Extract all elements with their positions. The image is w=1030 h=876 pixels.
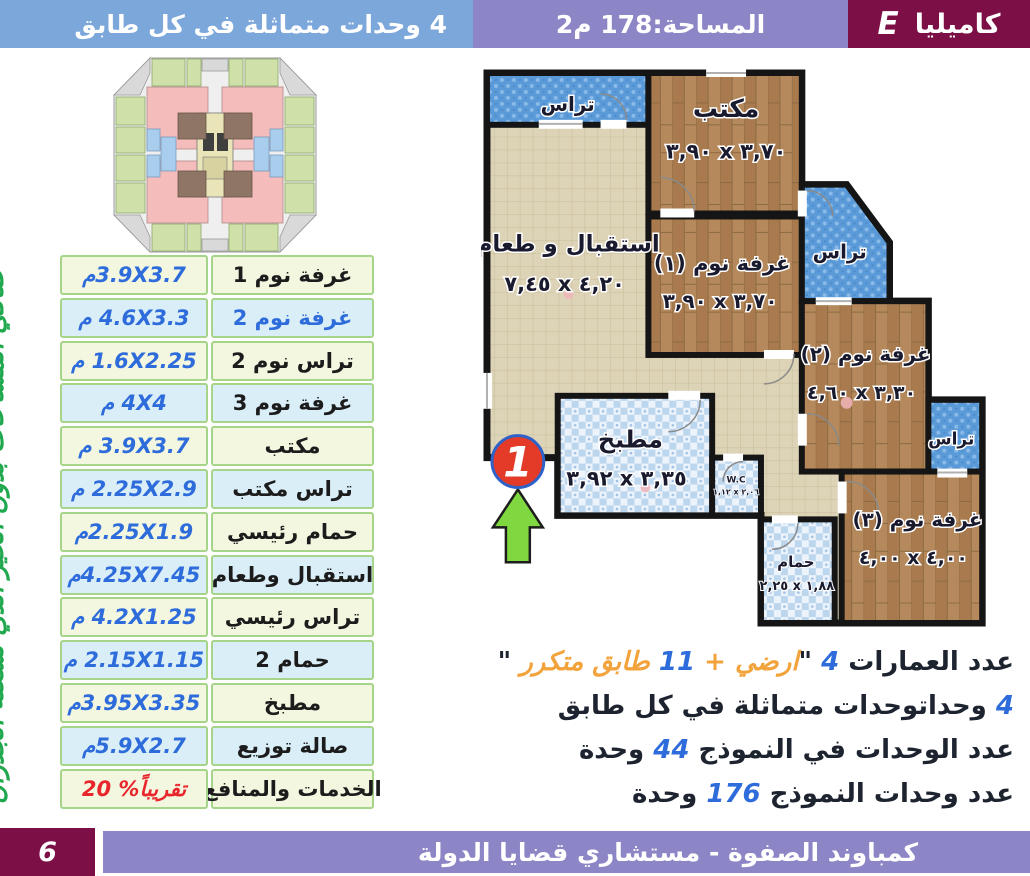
areas-table-row: استقبال وطعام4.25X7.45م bbox=[60, 555, 374, 595]
model-letter: E bbox=[878, 6, 899, 42]
info-line: عدد وحدات النموذج 176 وحدة bbox=[454, 772, 1014, 816]
areas-table-row: صالة توزيع5.9X2.7م bbox=[60, 726, 374, 766]
side-note-text: صافي المساحات بدون الحيز الذي تشغلة الجد… bbox=[0, 258, 10, 816]
info-segment: 176 bbox=[706, 779, 760, 809]
room-name-cell: مكتب bbox=[211, 426, 374, 466]
info-segment: وحدة bbox=[632, 779, 706, 809]
room-dimensions-cell: 20 %تقريباً bbox=[60, 769, 208, 809]
floor-plan-svg: تراس مكتب ٣,٩٠ x ٣,٧٠ استقبال و طعام ٧,٤… bbox=[481, 57, 1029, 639]
info-segment: " bbox=[498, 647, 521, 677]
kitchen-dims: ٣,٩٢ x ٣,٣٥ bbox=[566, 466, 687, 490]
terrace-office-label: تراس bbox=[813, 240, 867, 263]
room-dimensions-cell: 2.25X1.9م bbox=[60, 512, 208, 552]
room-name-cell: صالة توزيع bbox=[211, 726, 374, 766]
room-name-cell: تراس مكتب bbox=[211, 469, 374, 509]
bedroom-1-dims: ٣,٩٠ x ٣,٧٠ bbox=[663, 290, 778, 313]
areas-table-row: مكتب3.9X3.7 م bbox=[60, 426, 374, 466]
area-text: المساحة:178 م2 bbox=[556, 10, 765, 39]
bedroom-1-room bbox=[648, 216, 801, 354]
room-name-cell: غرفة نوم 1 bbox=[211, 255, 374, 295]
bedroom-2-dims: ٤,٦٠ x ٣,٣٠ bbox=[807, 382, 916, 404]
areas-table-row: تراس رئيسي4.2X1.25 م bbox=[60, 597, 374, 637]
room-dimensions-cell: 3.9X3.7م bbox=[60, 255, 208, 295]
room-dimensions-cell: 4.25X7.45م bbox=[60, 555, 208, 595]
areas-table-row: حمام رئيسي2.25X1.9م bbox=[60, 512, 374, 552]
building-overview-svg bbox=[90, 55, 340, 255]
room-name-cell: تراس نوم 2 bbox=[211, 341, 374, 381]
wc-label: W.C bbox=[727, 476, 746, 486]
entrance-marker: 1 bbox=[492, 436, 544, 563]
footer-title-bar: كمباوند الصفوة - مستشاري قضايا الدولة bbox=[103, 831, 1030, 873]
room-dimensions-cell: 4X4 م bbox=[60, 383, 208, 423]
bedroom-1-label: غرفة نوم (١) bbox=[654, 251, 790, 275]
room-dimensions-cell: 4.6X3.3 م bbox=[60, 298, 208, 338]
info-line: عدد الوحدات في النموذج 44 وحدة bbox=[454, 728, 1014, 772]
footer-title-text: كمباوند الصفوة - مستشاري قضايا الدولة bbox=[418, 838, 918, 867]
terrace-main-label: تراس bbox=[541, 93, 595, 116]
header-model: كاميليا E bbox=[848, 0, 1030, 48]
areas-table-row: مطبخ3.95X3.35م bbox=[60, 683, 374, 723]
areas-table-row: تراس نوم 21.6X2.25 م bbox=[60, 341, 374, 381]
room-dimensions-cell: 2.15X1.15 م bbox=[60, 640, 208, 680]
apartment-floor-plan: تراس مكتب ٣,٩٠ x ٣,٧٠ استقبال و طعام ٧,٤… bbox=[481, 57, 1029, 639]
areas-table-row: حمام 22.15X1.15 م bbox=[60, 640, 374, 680]
room-dimensions-cell: 3.95X3.35م bbox=[60, 683, 208, 723]
kitchen-room bbox=[558, 396, 712, 516]
bedroom-3-dims: ٤,٠٠ x ٤,٠٠ bbox=[859, 547, 968, 569]
unit-number-text: 1 bbox=[503, 438, 532, 487]
areas-table-row: غرفة نوم 24.6X3.3 م bbox=[60, 298, 374, 338]
room-name-cell: حمام رئيسي bbox=[211, 512, 374, 552]
info-segment: ارضي + bbox=[695, 647, 798, 677]
areas-table: غرفة نوم 13.9X3.7مغرفة نوم 24.6X3.3 مترا… bbox=[60, 255, 374, 811]
room-dimensions-cell: 5.9X2.7م bbox=[60, 726, 208, 766]
areas-table-row: غرفة نوم 34X4 م bbox=[60, 383, 374, 423]
info-segment: طابق متكرر bbox=[520, 647, 659, 677]
info-line: عدد العمارات 4 "ارضي + 11 طابق متكرر " bbox=[454, 640, 1014, 684]
reception-dims: ٧,٤٥ x ٤,٢٠ bbox=[504, 272, 625, 296]
terrace-bedroom2-label: تراس bbox=[928, 429, 974, 450]
room-name-cell: تراس رئيسي bbox=[211, 597, 374, 637]
room-name-cell: استقبال وطعام bbox=[211, 555, 374, 595]
info-segment: وحداتوحدات متماثلة في كل طابق bbox=[558, 691, 996, 721]
room-dimensions-cell: 3.9X3.7 م bbox=[60, 426, 208, 466]
room-name-cell: مطبخ bbox=[211, 683, 374, 723]
info-segment: 44 bbox=[653, 735, 689, 765]
building-overview-plan bbox=[90, 55, 340, 255]
info-segment: عدد العمارات bbox=[839, 647, 1014, 677]
units-note-text: 4 وحدات متماثلة في كل طابق bbox=[74, 10, 447, 39]
bathroom-dims: ٢,٢٥ x ١,٨٨ bbox=[760, 579, 835, 594]
kitchen-label: مطبخ bbox=[598, 426, 663, 454]
room-name-cell: غرفة نوم 2 bbox=[211, 298, 374, 338]
page-number-text: 6 bbox=[38, 837, 57, 868]
info-segment: 4 bbox=[821, 647, 839, 677]
wc-dims: ١,١٢ x ٢,٠٦ bbox=[713, 487, 759, 496]
room-dimensions-cell: 4.2X1.25 م bbox=[60, 597, 208, 637]
stairs-block bbox=[203, 157, 227, 179]
room-name-cell: الخدمات والمنافع bbox=[211, 769, 374, 809]
info-segment: عدد وحدات النموذج bbox=[761, 779, 1014, 809]
room-name-cell: غرفة نوم 3 bbox=[211, 383, 374, 423]
header-units-note: 4 وحدات متماثلة في كل طابق bbox=[0, 0, 473, 48]
areas-table-row: الخدمات والمنافع20 %تقريباً bbox=[60, 769, 374, 809]
info-segment: 4 bbox=[996, 691, 1014, 721]
info-segment: عدد الوحدات في النموذج bbox=[689, 735, 1014, 765]
info-segment: وحدة bbox=[579, 735, 653, 765]
areas-table-row: غرفة نوم 13.9X3.7م bbox=[60, 255, 374, 295]
page-number: 6 bbox=[0, 828, 95, 876]
info-segment: 11 bbox=[659, 647, 695, 677]
bedroom-3-label: غرفة نوم (٣) bbox=[852, 508, 982, 531]
model-name: كاميليا bbox=[915, 9, 1001, 40]
bathroom-label: حمام bbox=[777, 553, 814, 571]
areas-table-row: تراس مكتب2.25X2.9 م bbox=[60, 469, 374, 509]
room-name-cell: حمام 2 bbox=[211, 640, 374, 680]
room-dimensions-cell: 1.6X2.25 م bbox=[60, 341, 208, 381]
bedroom-2-label: غرفة نوم (٢) bbox=[801, 343, 931, 366]
header-area: المساحة:178 م2 bbox=[473, 0, 848, 48]
brochure-page: { "header": { "model_letter": "E", "mode… bbox=[0, 0, 1030, 876]
building-info: عدد العمارات 4 "ارضي + 11 طابق متكرر "4 … bbox=[454, 640, 1014, 816]
office-label: مكتب bbox=[693, 94, 759, 123]
entrance-arrow-icon bbox=[493, 489, 543, 562]
reception-label: استقبال و طعام bbox=[481, 231, 660, 257]
office-dims: ٣,٩٠ x ٣,٧٠ bbox=[666, 140, 787, 164]
areas-table-rows: غرفة نوم 13.9X3.7مغرفة نوم 24.6X3.3 مترا… bbox=[60, 255, 374, 809]
info-segment: " bbox=[799, 647, 822, 677]
info-line: 4 وحداتوحدات متماثلة في كل طابق bbox=[454, 684, 1014, 728]
room-dimensions-cell: 2.25X2.9 م bbox=[60, 469, 208, 509]
side-note: صافي المساحات بدون الحيز الذي تشغلة الجد… bbox=[6, 256, 50, 816]
